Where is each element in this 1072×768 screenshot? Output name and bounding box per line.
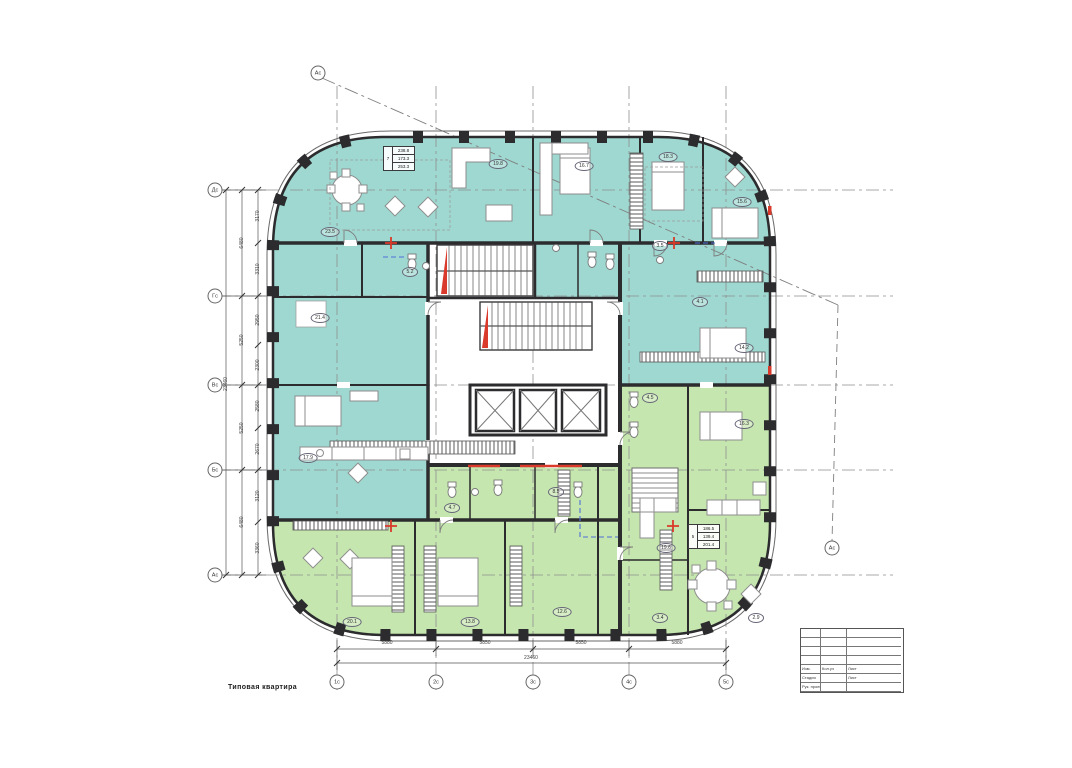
- stamp-area: 201.4: [698, 541, 719, 548]
- stamp-room-count: 7: [384, 147, 393, 170]
- stamp-room-count: 5: [689, 525, 698, 548]
- drawing-caption: Типовая квартира: [228, 684, 297, 691]
- title-block-cell: [847, 629, 901, 638]
- stamp-area: 238.8: [393, 147, 414, 155]
- apartment-stamp: 5 186.5 139.4 201.4: [688, 524, 720, 549]
- shaft-niche: [296, 301, 326, 327]
- title-block-cell: [821, 674, 847, 683]
- stair-core: [480, 302, 592, 350]
- stamp-area: 173.3: [393, 155, 414, 163]
- title-block-cell: [847, 647, 901, 656]
- title-block: Изм.Кол.учЛистСтадияЛистРук. проекта: [800, 628, 904, 693]
- stair-top: [437, 245, 533, 296]
- title-block-cell: [801, 647, 821, 656]
- title-block-cell: [847, 683, 901, 692]
- elevators: [470, 385, 606, 435]
- title-block-grid: Изм.Кол.учЛистСтадияЛистРук. проекта: [801, 629, 903, 692]
- title-block-cell: Кол.уч: [821, 665, 847, 674]
- title-block-cell: Изм.: [801, 665, 821, 674]
- title-block-cell: [801, 638, 821, 647]
- title-block-cell: [821, 683, 847, 692]
- floor-plan-canvas: ДсГсВсБсАс1с2с3с4с5сАсАс6480525052506480…: [0, 0, 1072, 768]
- title-block-cell: [821, 647, 847, 656]
- floor-plan-drawing: [0, 0, 1072, 768]
- title-block-cell: [847, 638, 901, 647]
- title-block-cell: [847, 656, 901, 665]
- title-block-cell: [821, 656, 847, 665]
- title-block-cell: Стадия: [801, 674, 821, 683]
- title-block-cell: Рук. проекта: [801, 683, 821, 692]
- stamp-area: 139.4: [698, 533, 719, 541]
- title-block-cell: Лист: [847, 665, 901, 674]
- title-block-cell: Лист: [847, 674, 901, 683]
- title-block-cell: [821, 629, 847, 638]
- stamp-area: 253.3: [393, 163, 414, 170]
- apartment-stamp: 7 238.8 173.3 253.3: [383, 146, 415, 171]
- title-block-cell: [821, 638, 847, 647]
- title-block-cell: [801, 629, 821, 638]
- title-block-cell: [801, 656, 821, 665]
- stamp-area: 186.5: [698, 525, 719, 533]
